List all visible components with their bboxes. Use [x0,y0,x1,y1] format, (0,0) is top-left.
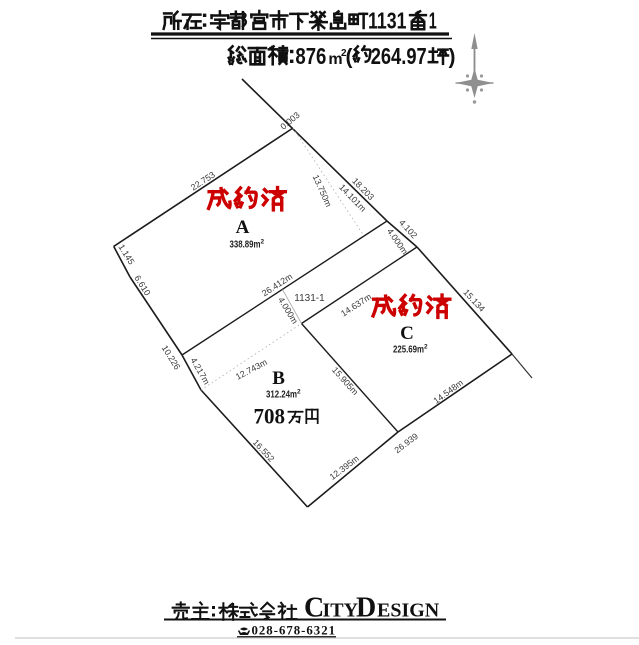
svg-text:1: 1 [429,8,437,34]
svg-text:ESIGN: ESIGN [377,600,440,622]
svg-text:225.69m: 225.69m [393,344,424,356]
svg-text:2: 2 [261,239,265,246]
svg-text:312.24m: 312.24m [266,389,297,401]
svg-text:1131-1: 1131-1 [294,293,325,304]
svg-text:876: 876 [295,43,326,69]
svg-text:2: 2 [424,344,428,351]
svg-text:A: A [236,217,250,238]
svg-text:C: C [400,323,414,344]
svg-text:708: 708 [254,404,286,429]
svg-text:2: 2 [297,389,301,396]
svg-text:028-678-6321: 028-678-6321 [252,624,337,638]
svg-text:338.89m: 338.89m [230,239,261,251]
svg-text:B: B [272,368,285,389]
svg-text:1131: 1131 [368,8,407,34]
svg-text:(: ( [346,46,353,69]
svg-text:): ) [449,46,456,69]
svg-text:264.97: 264.97 [371,43,427,69]
svg-text:ITY: ITY [323,600,359,622]
